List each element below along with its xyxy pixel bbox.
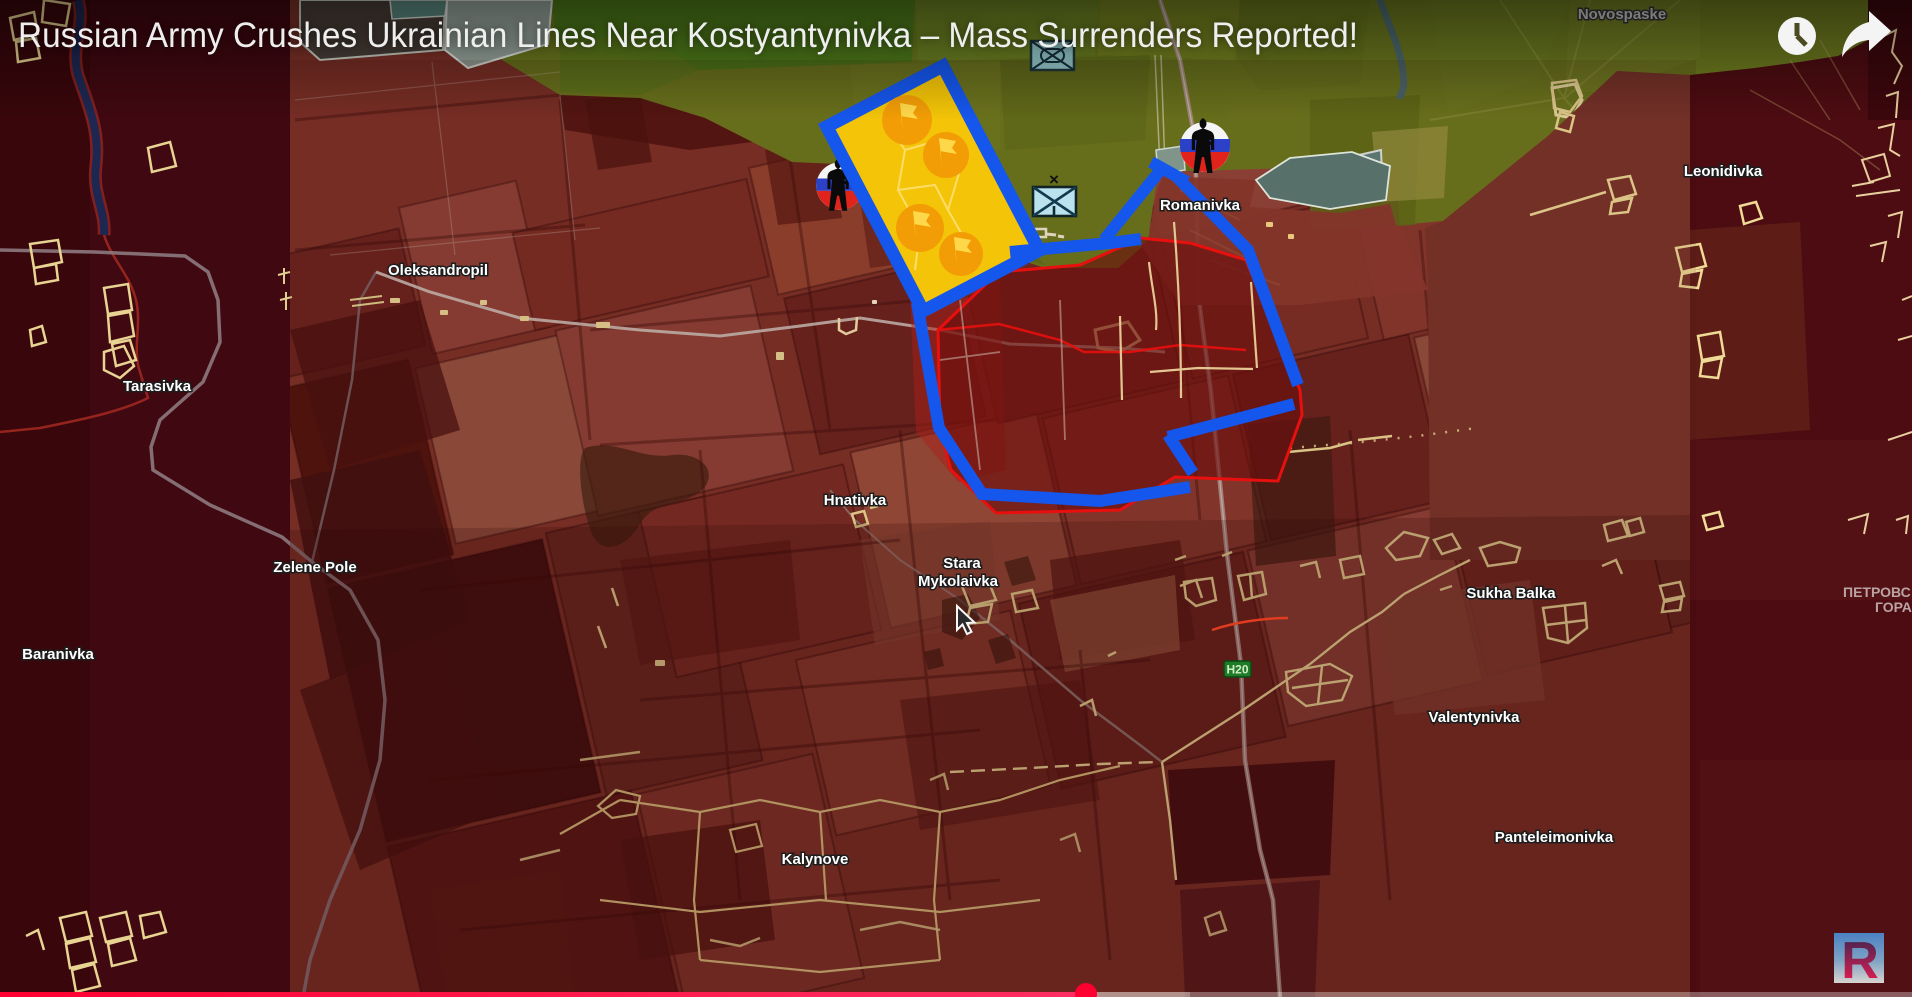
svg-text:Oleksandropil: Oleksandropil [388, 262, 488, 279]
svg-text:Kalynove: Kalynove [782, 851, 849, 868]
svg-text:R: R [1841, 932, 1879, 990]
svg-text:Mykolaivka: Mykolaivka [918, 573, 999, 590]
svg-text:ГОРА: ГОРА [1875, 599, 1912, 615]
svg-text:Leonidivka: Leonidivka [1684, 163, 1763, 180]
svg-text:Panteleimonivka: Panteleimonivka [1495, 829, 1614, 846]
svg-text:H20: H20 [1226, 663, 1248, 677]
svg-text:Zelene Pole: Zelene Pole [273, 559, 356, 576]
svg-text:Sukha Balka: Sukha Balka [1466, 585, 1556, 602]
svg-text:Romanivka: Romanivka [1160, 197, 1241, 214]
svg-text:Russian Army Crushes Ukrainian: Russian Army Crushes Ukrainian Lines Nea… [18, 16, 1358, 55]
svg-text:Baranivka: Baranivka [22, 646, 94, 663]
svg-text:Hnativka: Hnativka [824, 492, 887, 509]
svg-text:Stara: Stara [943, 555, 981, 572]
svg-text:ПЕТРОВС: ПЕТРОВС [1843, 584, 1911, 600]
svg-text:Valentynivka: Valentynivka [1429, 709, 1521, 726]
svg-text:Tarasivka: Tarasivka [123, 378, 192, 395]
